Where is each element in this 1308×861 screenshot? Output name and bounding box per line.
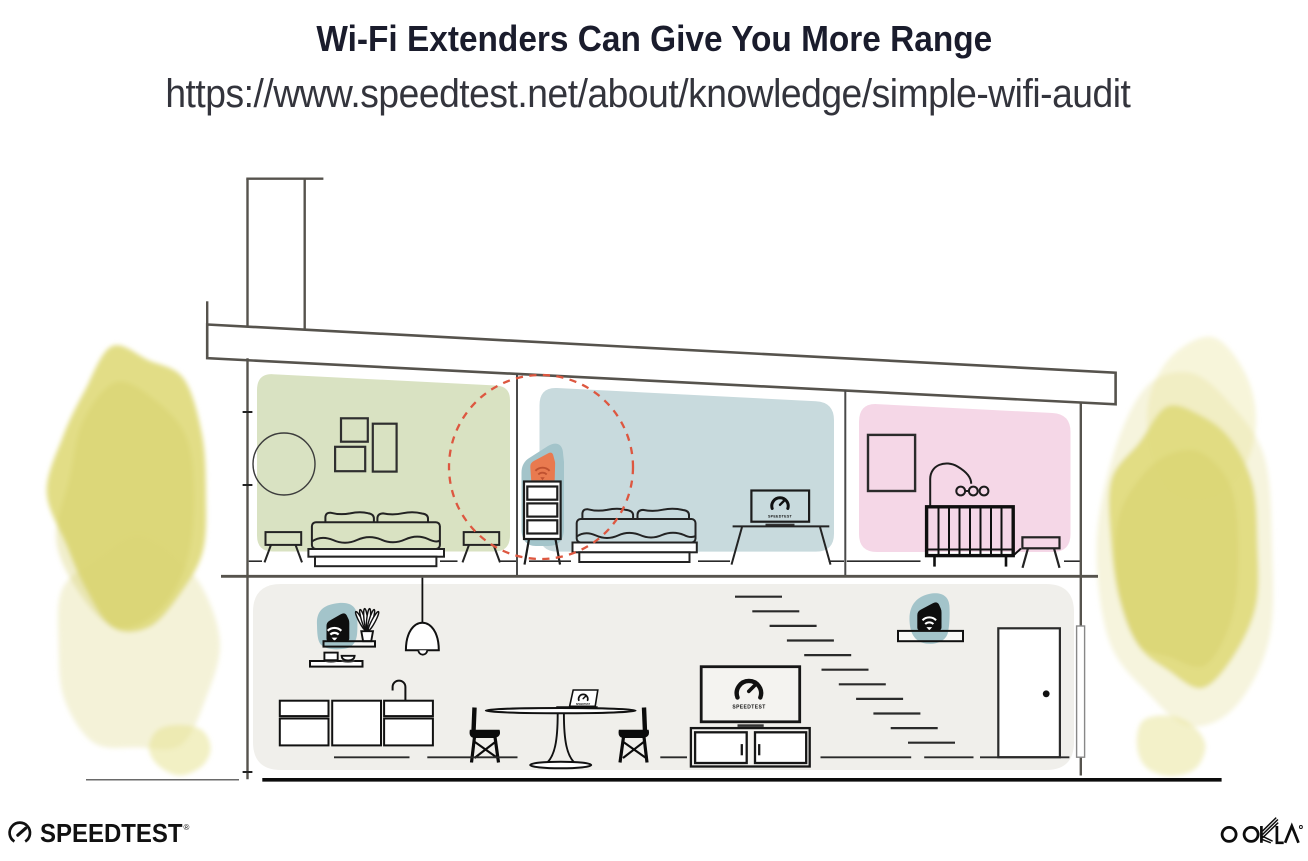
svg-text:SPEEDTEST: SPEEDTEST bbox=[576, 703, 591, 706]
svg-text:SPEEDTEST: SPEEDTEST bbox=[768, 515, 793, 519]
svg-text:®: ® bbox=[184, 823, 190, 832]
svg-text:SPEEDTEST: SPEEDTEST bbox=[40, 820, 183, 848]
svg-text:SPEEDTEST: SPEEDTEST bbox=[732, 704, 765, 710]
